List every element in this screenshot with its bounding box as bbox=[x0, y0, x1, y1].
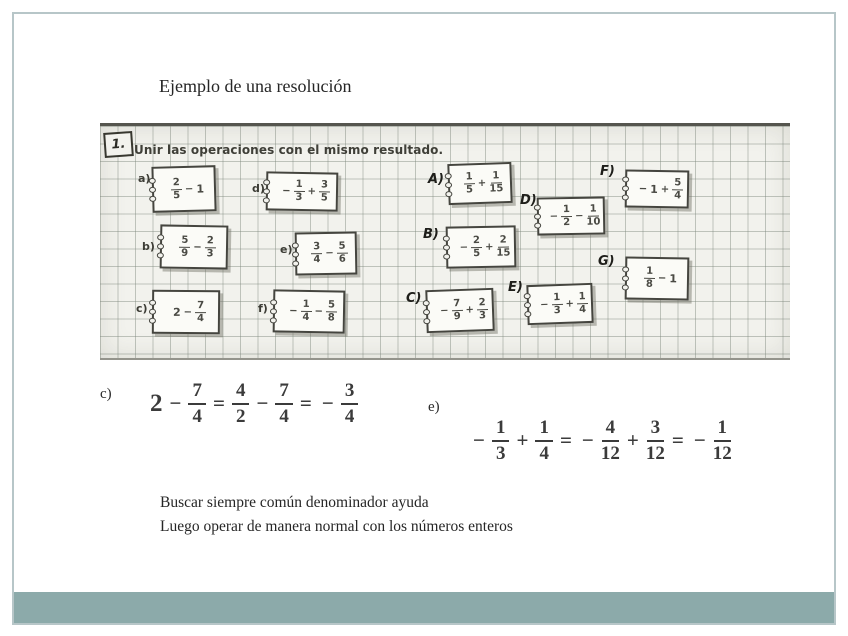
spiral-binding-icon bbox=[270, 299, 277, 323]
card-label-E: E) bbox=[508, 280, 523, 295]
solution-e-label: e) bbox=[428, 399, 440, 416]
card-d-expression: −13+35 bbox=[280, 180, 331, 204]
spiral-binding-icon bbox=[423, 300, 431, 324]
spiral-binding-icon bbox=[443, 236, 450, 260]
slide: Ejemplo de una resolución 1. Unir las op… bbox=[0, 0, 848, 636]
card-label-A: A) bbox=[428, 172, 444, 187]
spiral-binding-icon bbox=[149, 300, 156, 324]
card-F: −1+54 bbox=[625, 169, 690, 208]
card-G: 18−1 bbox=[625, 256, 690, 300]
spiral-binding-icon bbox=[157, 234, 164, 258]
card-label-b: b) bbox=[142, 240, 155, 253]
exercise-number: 1. bbox=[111, 137, 126, 153]
card-a-expression: 25−1 bbox=[170, 177, 206, 201]
spiral-binding-icon bbox=[445, 172, 453, 196]
solution-e-equation: −13+14=−412+312=−112 bbox=[468, 418, 734, 464]
card-D: −12−110 bbox=[537, 196, 606, 235]
exercise-number-box: 1. bbox=[103, 131, 134, 158]
card-label-G: G) bbox=[598, 254, 615, 269]
card-G-expression: 18−1 bbox=[643, 267, 678, 291]
card-b-expression: 59−23 bbox=[178, 235, 217, 259]
spiral-binding-icon bbox=[622, 266, 629, 290]
card-B: −25+215 bbox=[446, 225, 517, 268]
card-label-F: F) bbox=[600, 164, 615, 179]
card-e-expression: 34−56 bbox=[310, 242, 349, 266]
card-b: 59−23 bbox=[160, 224, 229, 269]
solution-c-equation: 2−74=42−74=−34 bbox=[148, 381, 360, 427]
card-D-expression: −12−110 bbox=[547, 204, 601, 228]
worksheet-instruction: Unir las operaciones con el mismo result… bbox=[134, 143, 443, 157]
solution-c-label: c) bbox=[100, 386, 112, 403]
card-C: −79+23 bbox=[425, 288, 494, 333]
footer-notes: Buscar siempre común denominador ayuda L… bbox=[160, 494, 513, 542]
slide-accent-band bbox=[14, 592, 834, 623]
card-F-expression: −1+54 bbox=[637, 177, 685, 201]
card-A-expression: 15+115 bbox=[462, 171, 504, 195]
card-label-C: C) bbox=[406, 291, 421, 306]
spiral-binding-icon bbox=[524, 293, 532, 317]
card-a: 25−1 bbox=[151, 165, 216, 213]
note-line-2: Luego operar de manera normal con los nú… bbox=[160, 518, 513, 536]
spiral-binding-icon bbox=[292, 242, 299, 266]
card-f: −14−58 bbox=[273, 289, 346, 333]
card-d: −13+35 bbox=[266, 171, 339, 211]
card-e: 34−56 bbox=[295, 231, 358, 275]
card-label-c: c) bbox=[136, 302, 148, 315]
card-E-expression: −13+14 bbox=[538, 291, 589, 316]
spiral-binding-icon bbox=[622, 176, 629, 200]
card-B-expression: −25+215 bbox=[457, 235, 511, 259]
card-label-f: f) bbox=[258, 302, 268, 315]
spiral-binding-icon bbox=[263, 179, 270, 203]
card-label-B: B) bbox=[423, 227, 439, 242]
spiral-binding-icon bbox=[149, 178, 157, 202]
spiral-binding-icon bbox=[534, 205, 541, 229]
card-label-e: e) bbox=[280, 243, 293, 256]
card-c-expression: 2−74 bbox=[172, 300, 207, 323]
card-C-expression: −79+23 bbox=[438, 298, 489, 323]
note-line-1: Buscar siempre común denominador ayuda bbox=[160, 494, 513, 512]
card-f-expression: −14−58 bbox=[287, 300, 338, 324]
card-A: 15+115 bbox=[447, 162, 512, 205]
slide-title: Ejemplo de una resolución bbox=[159, 76, 351, 97]
worksheet-scan: 1. Unir las operaciones con el mismo res… bbox=[100, 123, 790, 360]
card-c: 2−74 bbox=[152, 290, 220, 335]
card-E: −13+14 bbox=[526, 283, 593, 325]
